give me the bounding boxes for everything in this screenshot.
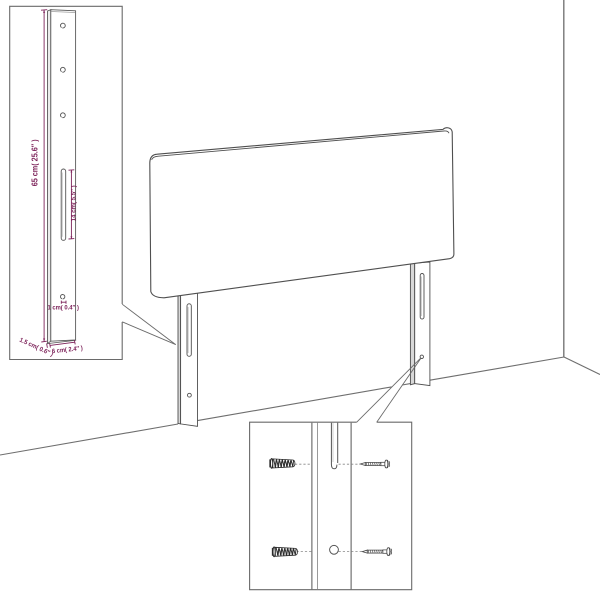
- svg-text:1 cm( 0.4″ ): 1 cm( 0.4″ ): [47, 304, 79, 311]
- svg-text:65 cm( 25.6″ ): 65 cm( 25.6″ ): [30, 139, 39, 186]
- svg-text:14 cm( 5.5″ ): 14 cm( 5.5″ ): [71, 185, 78, 221]
